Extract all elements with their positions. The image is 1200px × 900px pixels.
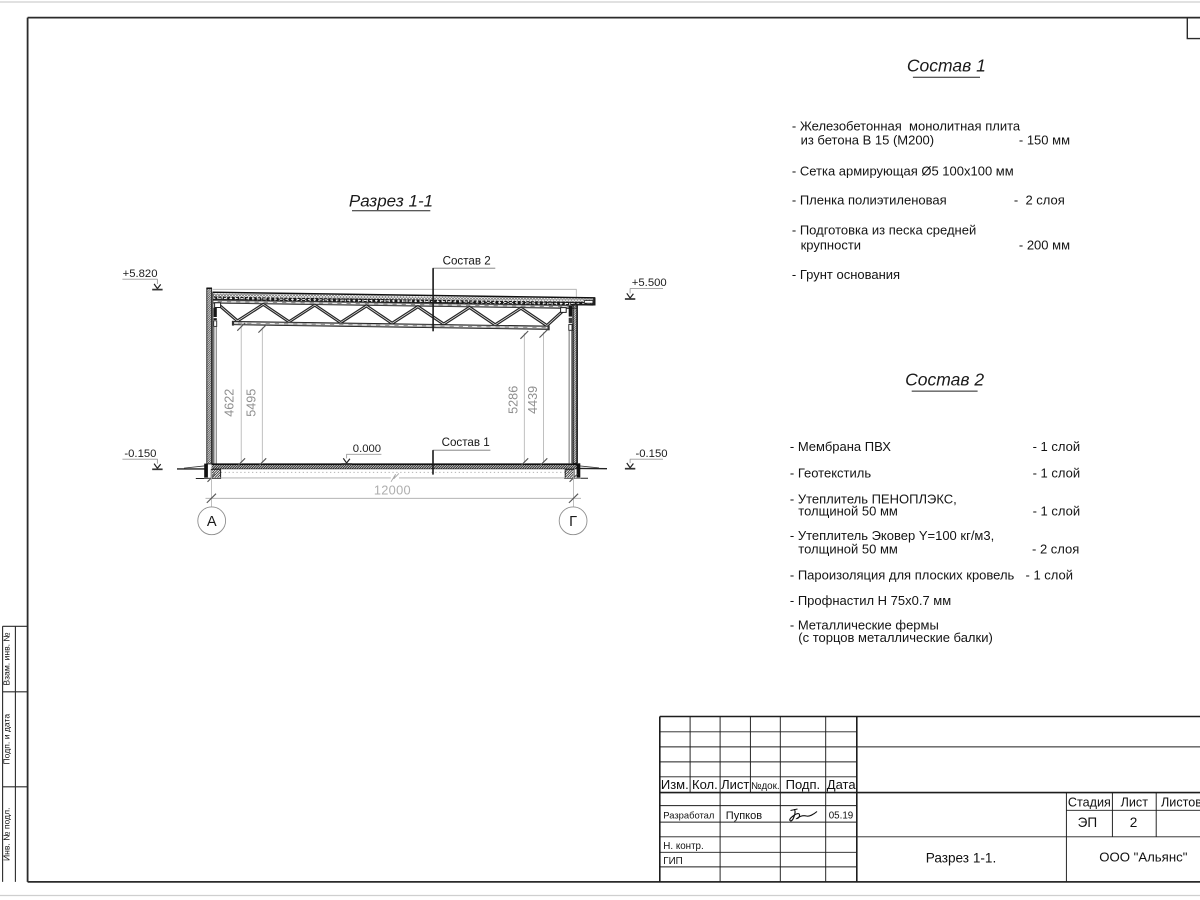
svg-text:5286: 5286 [507,386,521,414]
svg-text:+5.500: +5.500 [632,277,667,289]
svg-text:толщиной 50 мм: толщиной 50 мм [798,504,898,519]
svg-text:ГИП: ГИП [663,856,682,867]
svg-text:Стадия: Стадия [1068,795,1111,809]
svg-text:- 1 слой: - 1 слой [1033,439,1081,454]
svg-text:Дата: Дата [827,777,857,792]
svg-text:- Профнастил Н 75х0.7 мм: - Профнастил Н 75х0.7 мм [790,593,951,608]
svg-text:- Пленка полиэтиленовая: - Пленка полиэтиленовая [792,193,947,208]
svg-text:Инв. № подл.: Инв. № подл. [2,808,12,862]
svg-text:Подп.: Подп. [786,777,821,792]
svg-text:Изм.: Изм. [661,777,689,792]
svg-text:2: 2 [1130,815,1138,830]
svg-text:+5.820: +5.820 [123,268,158,280]
svg-text:Лист: Лист [721,777,749,792]
svg-text:Г: Г [569,514,577,530]
svg-text:Разрез 1-1.: Разрез 1-1. [926,851,997,866]
svg-text:- 1 слой: - 1 слой [1026,567,1074,582]
svg-text:Подп. и дата: Подп. и дата [2,714,12,765]
svg-text:Состав 1: Состав 1 [907,56,986,76]
svg-text:05.19: 05.19 [829,810,854,821]
svg-text:- Пароизоляция для плоских кро: - Пароизоляция для плоских кровель [790,567,1015,582]
svg-text:Взам. инв. №: Взам. инв. № [2,632,12,685]
svg-text:- Грунт основания: - Грунт основания [792,267,900,282]
svg-text:- Сетка армирующая Ø5 100x100: - Сетка армирующая Ø5 100x100 мм [792,164,1014,179]
svg-text:Разрез 1-1: Разрез 1-1 [349,192,433,211]
svg-text:ЭП: ЭП [1078,815,1098,830]
svg-text:Листов: Листов [1161,795,1200,809]
svg-text:Лист: Лист [1121,795,1149,809]
svg-text:Кол.: Кол. [692,777,718,792]
svg-text:Состав 2: Состав 2 [905,369,984,389]
svg-text:0.000: 0.000 [353,443,381,455]
svg-text:- Геотекстиль: - Геотекстиль [790,465,871,480]
svg-text:- Железобетонная монолитная п: - Железобетонная монолитная плита [792,118,1021,133]
svg-text:Состав 1: Состав 1 [442,436,490,449]
svg-text:толщиной 50 мм: толщиной 50 мм [798,542,898,557]
svg-text:- 1 слой: - 1 слой [1033,465,1081,480]
svg-text:Пупков: Пупков [726,810,762,822]
svg-text:(с торцов металлические балки): (с торцов металлические балки) [798,630,993,645]
svg-text:Состав 2: Состав 2 [443,254,491,267]
svg-text:из бетона В 15 (М200): из бетона В 15 (М200) [801,133,935,148]
svg-text:- 2 слоя: - 2 слоя [1014,193,1065,208]
svg-text:- 200 мм: - 200 мм [1019,238,1070,253]
svg-text:- 2 слоя: - 2 слоя [1032,542,1079,557]
svg-text:крупности: крупности [801,238,861,253]
svg-text:- Мембрана ПВХ: - Мембрана ПВХ [790,439,891,454]
svg-text:Разработал: Разработал [663,809,714,820]
svg-text:№док.: №док. [751,781,780,792]
svg-text:12000: 12000 [374,483,411,498]
svg-text:-0.150: -0.150 [124,448,156,460]
svg-text:- Подготовка из песка средней: - Подготовка из песка средней [792,222,976,237]
svg-text:Н. контр.: Н. контр. [663,841,703,852]
svg-text:4622: 4622 [223,389,237,417]
svg-text:ООО "Альянс": ООО "Альянс" [1099,850,1187,865]
svg-text:-0.150: -0.150 [636,448,668,460]
svg-text:- 1 слой: - 1 слой [1033,504,1081,519]
svg-text:4439: 4439 [526,386,540,414]
svg-text:А: А [207,514,217,530]
svg-text:- 150 мм: - 150 мм [1019,133,1070,148]
svg-text:5495: 5495 [245,389,259,417]
